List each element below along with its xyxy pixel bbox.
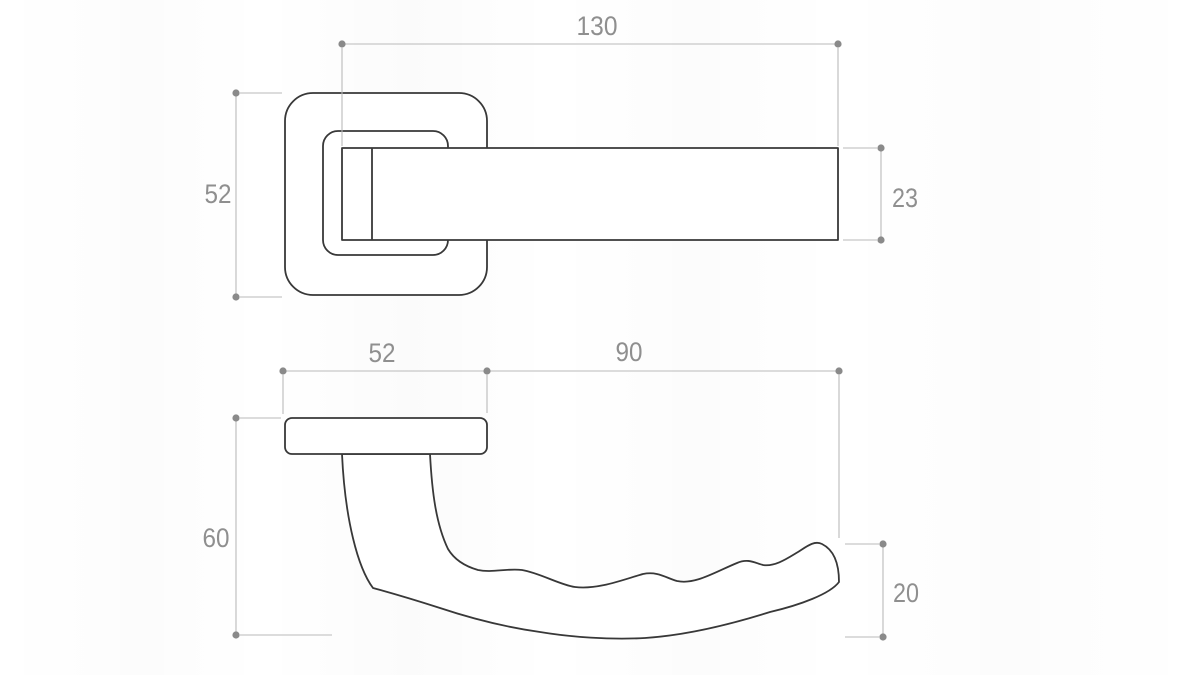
dim-dot [279, 367, 286, 374]
dimension-52-side: 52 [279, 338, 487, 414]
dimension-20: 20 [845, 540, 919, 640]
front-view [285, 93, 838, 295]
dimension-23: 23 [843, 144, 918, 243]
dimension-52-front: 52 [205, 89, 283, 300]
handle-profile [342, 454, 839, 639]
dim-dot [232, 631, 239, 638]
dim-dot [835, 367, 842, 374]
dim-dot [232, 89, 239, 96]
dim-dot [232, 293, 239, 300]
lever-bar [342, 148, 838, 240]
dim-label-lever-thickness: 23 [892, 183, 918, 213]
drawing-sheet: 130 52 23 52 [0, 0, 1200, 675]
dim-dot [877, 236, 884, 243]
dim-label-overall-length: 130 [577, 11, 618, 41]
dim-dot [877, 144, 884, 151]
dim-dot [338, 40, 345, 47]
dimension-90: 90 [483, 337, 842, 538]
rosette-side-profile [285, 418, 487, 454]
side-view [285, 418, 839, 639]
dim-dot [232, 414, 239, 421]
dim-dot [834, 40, 841, 47]
dim-dot [483, 367, 490, 374]
dim-dot [879, 633, 886, 640]
dim-label-rosette-height: 52 [205, 179, 232, 209]
dim-label-projection-depth: 60 [203, 523, 230, 553]
dim-label-grip-length: 90 [616, 337, 643, 367]
dim-label-rosette-width: 52 [369, 338, 396, 368]
dim-dot [879, 540, 886, 547]
drawing-canvas: 130 52 23 52 [0, 0, 1200, 675]
dim-label-grip-thickness: 20 [893, 578, 919, 608]
